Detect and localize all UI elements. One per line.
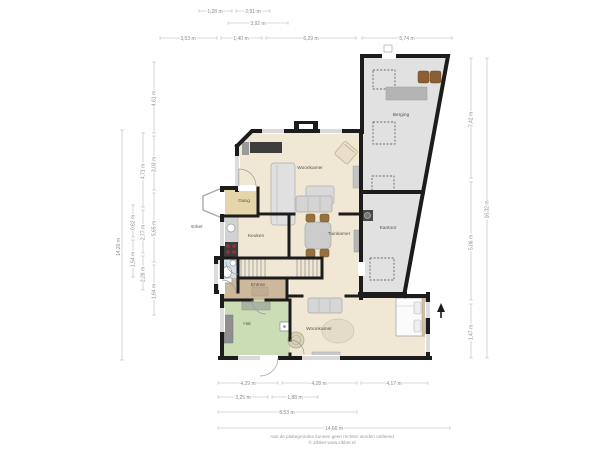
workbench-icon xyxy=(386,87,427,100)
bed-icon xyxy=(396,298,426,336)
stool-icon xyxy=(418,71,429,83)
dim-label: 14,66 m xyxy=(325,426,343,432)
sofa2-icon xyxy=(308,298,342,313)
dim-label: 3,25 m xyxy=(235,395,250,401)
door-gap xyxy=(260,355,278,361)
dim-label: 0,62 m xyxy=(131,215,137,230)
dim-label: 2,77 m xyxy=(141,225,147,240)
doormat-icon xyxy=(252,287,268,296)
dim-label: 3,03 m xyxy=(152,157,158,172)
washing-machine-icon xyxy=(362,210,373,221)
stove-icon xyxy=(224,242,238,257)
room-label-tuinkamer: Tuinkamer xyxy=(328,231,351,237)
dim-label: 1,40 m xyxy=(233,36,248,42)
dim-label: 16,32 m xyxy=(485,200,491,218)
dim-label: 8,53 m xyxy=(279,410,294,416)
door-gap xyxy=(382,52,396,59)
room-label-hal: Hal xyxy=(243,321,250,327)
dim-label: 4,28 m xyxy=(311,381,326,387)
room-label-gang: Gang xyxy=(238,198,250,204)
floorplan-drawing: Woonkamer Berging Kantoor Tuinkamer Keuk… xyxy=(0,0,600,450)
floorplan-page: Woonkamer Berging Kantoor Tuinkamer Keuk… xyxy=(0,0,600,450)
room-label-entree: Entree xyxy=(251,282,265,288)
window-icon xyxy=(425,334,431,352)
dim-label: 4,17 m xyxy=(386,381,401,387)
dim-label: 5,65 m xyxy=(152,221,158,236)
dim-label: 5,06 m xyxy=(469,235,475,250)
tall-cabinet-icon xyxy=(224,315,233,343)
tv-cabinet-icon xyxy=(250,142,282,153)
window-icon xyxy=(320,128,342,134)
room-label-kantoor: Kantoor xyxy=(380,225,397,231)
speaker-icon xyxy=(242,142,249,155)
washbasin-icon xyxy=(230,260,236,266)
door-gap xyxy=(219,279,225,294)
room-label-erker: Erker xyxy=(191,224,203,230)
meter-box-icon xyxy=(280,322,289,331)
dim-label: 1,28 m xyxy=(207,9,222,15)
room-label-woonkamer-top: Woonkamer xyxy=(297,165,323,171)
sink-icon xyxy=(227,224,235,232)
window-icon xyxy=(219,222,225,246)
hal-cabinet-icon xyxy=(242,302,270,310)
dim-label: 4,61 m xyxy=(152,91,158,106)
dim-label: 7,42 m xyxy=(469,112,475,127)
dim-label: 14,20 m xyxy=(116,238,122,256)
window-icon xyxy=(262,128,284,134)
dim-label: 1,88 m xyxy=(287,395,302,401)
couch-icon xyxy=(296,196,332,212)
dim-label: 1,54 m xyxy=(131,252,137,267)
stool-icon xyxy=(430,71,441,83)
room-label-woonkamer-bottom: Woonkamer xyxy=(306,326,332,332)
dim-label: 2,91 m xyxy=(245,9,260,15)
footer: Aan de plattegronden kunnen geen rechten… xyxy=(270,434,394,445)
door-gap xyxy=(358,262,365,276)
window-icon xyxy=(213,264,219,284)
dim-label: 4,29 m xyxy=(240,381,255,387)
dim-label: 5,74 m xyxy=(399,36,414,42)
footer-disclaimer: Aan de plattegronden kunnen geen rechten… xyxy=(270,434,394,439)
dim-label: 3,53 m xyxy=(180,36,195,42)
window-icon xyxy=(425,302,431,318)
dim-label: 2,28 m xyxy=(141,267,147,282)
dim-label: 4,71 m xyxy=(141,164,147,179)
dim-label: 1,64 m xyxy=(152,284,158,299)
footer-credit: © Zibber www.zibber.nl xyxy=(308,439,355,445)
room-label-keuken: Keuken xyxy=(248,233,265,239)
dim-label: 1,47 m xyxy=(469,325,475,340)
window-icon xyxy=(302,355,340,361)
sideboard-icon xyxy=(353,166,359,188)
north-arrow-icon xyxy=(437,303,445,318)
radiator-icon xyxy=(354,230,359,252)
window-icon xyxy=(219,308,225,332)
sofa-icon xyxy=(271,163,295,225)
door-gap xyxy=(219,192,225,214)
dim-label: 6,29 m xyxy=(303,36,318,42)
room-label-berging: Berging xyxy=(393,112,410,118)
door-outswing xyxy=(384,45,392,52)
door-gap xyxy=(238,185,256,191)
dim-label: 3,92 m xyxy=(250,21,265,27)
